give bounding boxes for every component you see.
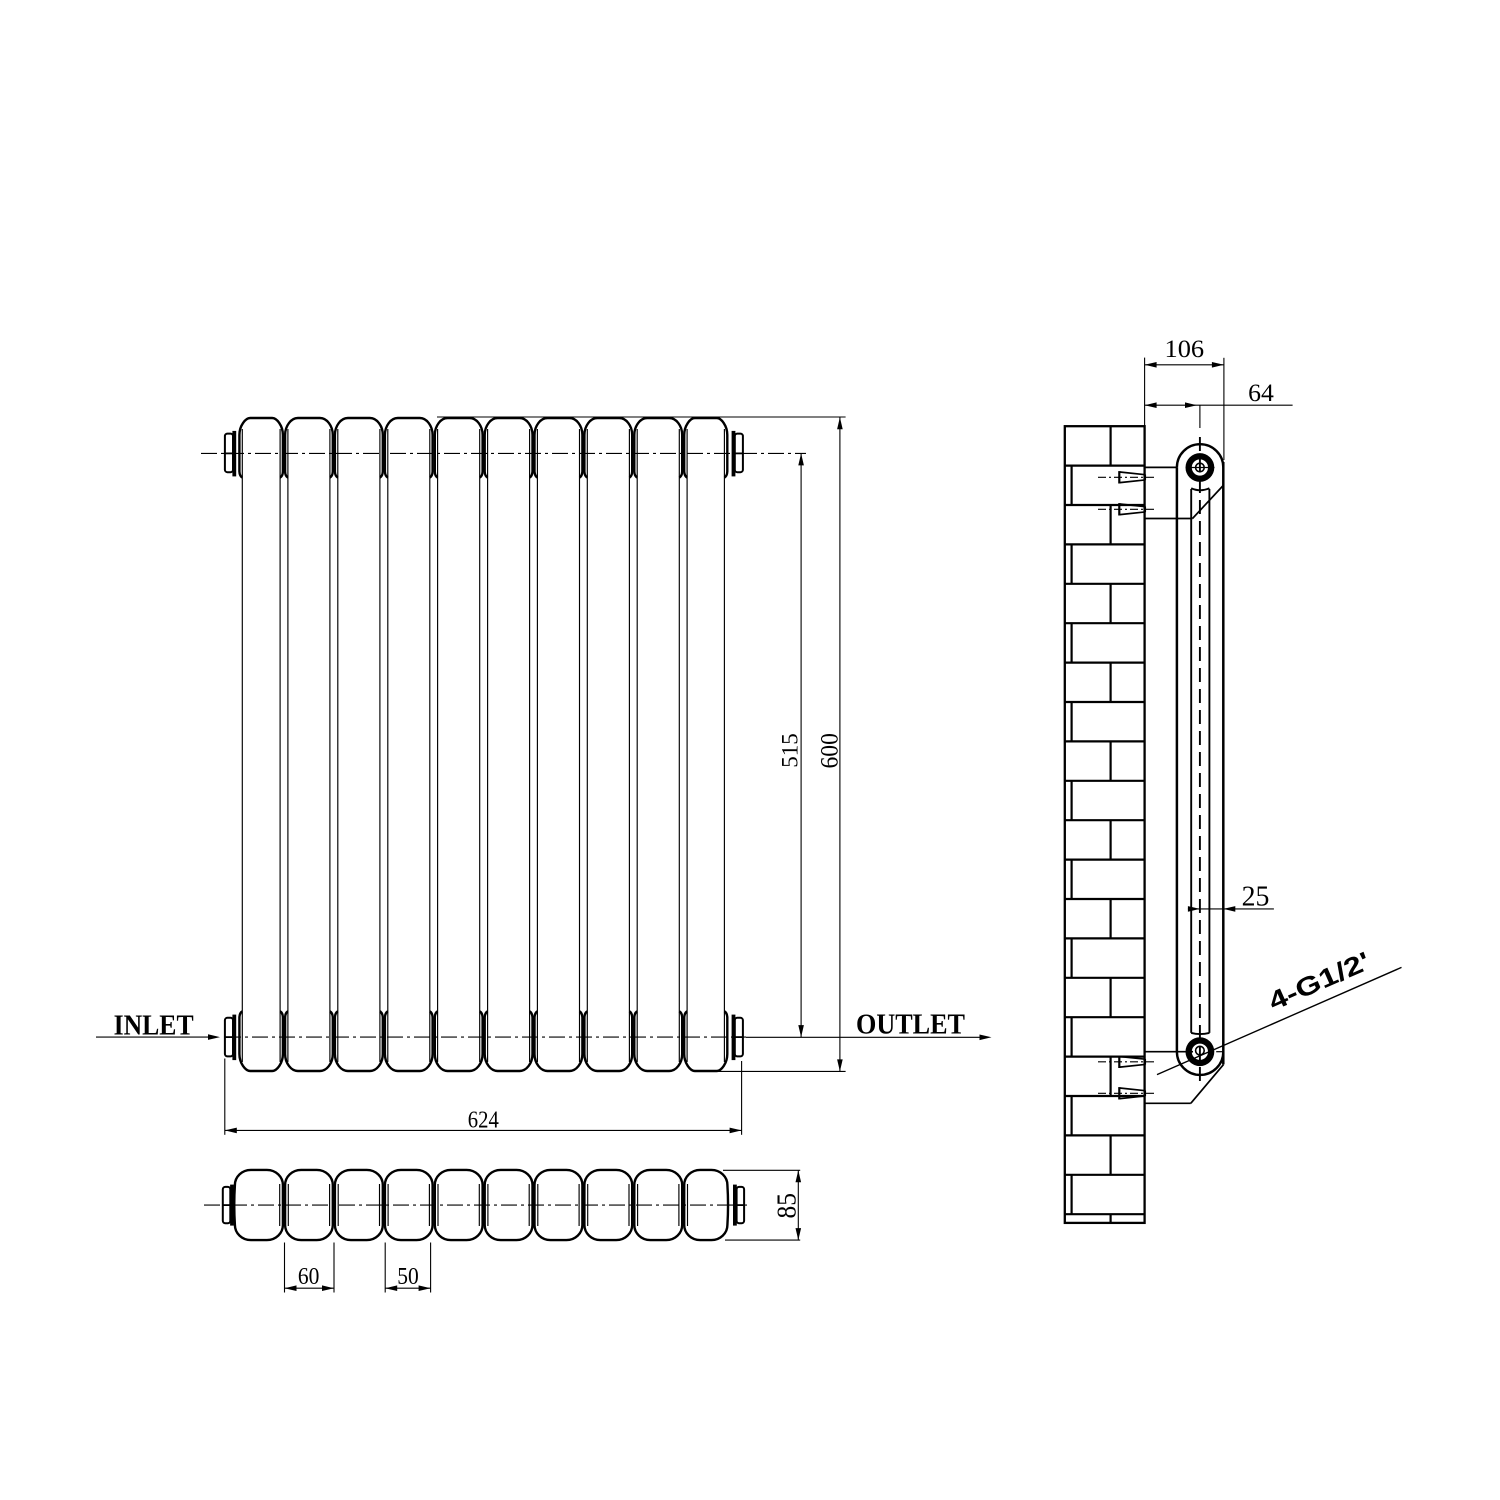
svg-text:64: 64 [1248, 380, 1274, 407]
svg-text:OUTLET: OUTLET [856, 1009, 965, 1041]
svg-text:600: 600 [817, 733, 844, 769]
svg-text:60: 60 [298, 1264, 320, 1290]
svg-text:25: 25 [1242, 882, 1270, 913]
svg-text:515: 515 [778, 733, 803, 768]
svg-text:106: 106 [1165, 336, 1205, 363]
svg-text:50: 50 [397, 1264, 419, 1290]
svg-text:85: 85 [772, 1193, 802, 1219]
svg-text:624: 624 [468, 1107, 499, 1133]
